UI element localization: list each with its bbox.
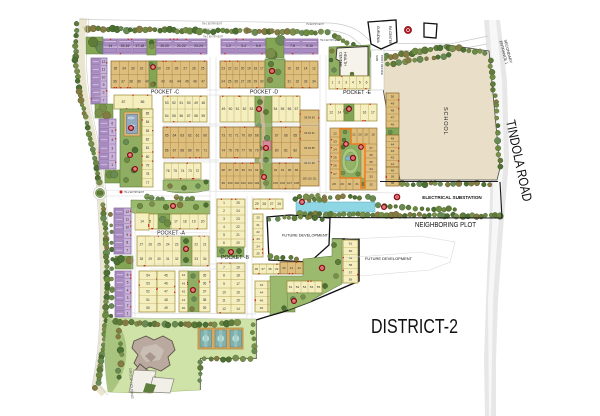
svg-text:10: 10	[125, 225, 129, 229]
svg-text:POCKET -D: POCKET -D	[250, 90, 278, 96]
svg-text:30: 30	[256, 216, 260, 220]
svg-text:6: 6	[223, 241, 225, 245]
svg-text:19: 19	[364, 133, 368, 137]
svg-text:50: 50	[229, 107, 233, 111]
svg-text:42: 42	[182, 290, 186, 294]
svg-text:3-4: 3-4	[241, 44, 246, 48]
svg-text:96: 96	[235, 168, 239, 172]
svg-text:52: 52	[172, 101, 176, 105]
svg-text:49: 49	[391, 102, 395, 106]
svg-text:7M-3 ENTRY/EXIT: 7M-3 ENTRY/EXIT	[320, 39, 341, 42]
svg-text:70: 70	[196, 149, 200, 153]
svg-text:36: 36	[255, 267, 259, 271]
svg-text:56: 56	[349, 278, 353, 282]
svg-text:38: 38	[268, 267, 272, 271]
svg-text:24: 24	[221, 80, 225, 84]
svg-text:24: 24	[236, 209, 240, 213]
svg-text:3: 3	[223, 217, 225, 221]
svg-text:15: 15	[296, 66, 300, 70]
svg-text:33: 33	[194, 257, 198, 261]
svg-text:21-22: 21-22	[177, 44, 186, 48]
svg-text:11: 11	[102, 68, 106, 72]
svg-text:81: 81	[284, 149, 288, 153]
svg-text:CENTER: CENTER	[338, 52, 342, 67]
svg-text:8: 8	[223, 274, 225, 278]
svg-text:34: 34	[256, 244, 260, 248]
svg-text:49: 49	[164, 306, 168, 310]
svg-text:16: 16	[236, 290, 240, 294]
svg-text:7M-2 ENTRY/EXIT: 7M-2 ENTRY/EXIT	[124, 191, 145, 194]
svg-text:78: 78	[146, 172, 150, 176]
svg-text:53: 53	[165, 101, 169, 105]
svg-text:45: 45	[260, 299, 264, 303]
svg-text:44: 44	[391, 143, 395, 147]
svg-text:44: 44	[177, 80, 181, 84]
svg-text:3: 3	[127, 296, 129, 300]
svg-text:98: 98	[222, 168, 226, 172]
svg-text:31: 31	[355, 182, 359, 186]
svg-text:75: 75	[228, 149, 232, 153]
svg-text:16: 16	[287, 66, 291, 70]
svg-text:20: 20	[358, 133, 362, 137]
svg-text:68: 68	[180, 149, 184, 153]
svg-text:50: 50	[391, 95, 395, 99]
svg-text:11: 11	[222, 299, 226, 303]
svg-text:33: 33	[131, 67, 135, 71]
svg-text:DISTRICT-2: DISTRICT-2	[371, 316, 458, 338]
svg-text:30: 30	[348, 182, 352, 186]
svg-text:6: 6	[366, 81, 368, 85]
svg-text:33: 33	[256, 237, 260, 241]
svg-text:87: 87	[122, 100, 126, 104]
svg-text:82: 82	[146, 138, 150, 142]
svg-text:POCKET -B: POCKET -B	[221, 255, 249, 261]
svg-text:37: 37	[369, 146, 373, 150]
svg-text:11: 11	[126, 218, 130, 222]
svg-text:24: 24	[166, 242, 170, 246]
svg-text:23: 23	[175, 242, 179, 246]
svg-text:35: 35	[114, 67, 118, 71]
svg-text:9: 9	[103, 83, 105, 87]
svg-text:31: 31	[166, 257, 170, 261]
svg-text:44: 44	[260, 291, 264, 295]
svg-text:22: 22	[236, 225, 240, 229]
svg-text:POST OFFICE: POST OFFICE	[380, 55, 384, 75]
svg-text:19: 19	[192, 220, 196, 224]
svg-text:2: 2	[127, 304, 129, 308]
svg-text:29: 29	[254, 80, 258, 84]
svg-text:77: 77	[242, 149, 246, 153]
svg-text:27: 27	[270, 202, 274, 206]
svg-text:14: 14	[108, 44, 112, 48]
svg-text:58: 58	[349, 263, 353, 267]
svg-text:49: 49	[222, 107, 226, 111]
svg-text:109 110 111: 109 110 111	[302, 176, 317, 180]
svg-text:1-2: 1-2	[226, 44, 231, 48]
svg-text:31: 31	[256, 223, 260, 227]
svg-text:89: 89	[295, 168, 299, 172]
svg-text:48: 48	[164, 298, 168, 302]
svg-text:42: 42	[391, 156, 395, 160]
svg-text:20: 20	[201, 220, 205, 224]
svg-text:101: 101	[234, 181, 239, 185]
svg-text:5-6: 5-6	[256, 44, 261, 48]
svg-text:43: 43	[169, 80, 173, 84]
svg-text:8: 8	[103, 91, 105, 95]
svg-text:30: 30	[260, 80, 264, 84]
svg-text:37: 37	[261, 267, 265, 271]
svg-text:80: 80	[146, 155, 150, 159]
svg-text:35: 35	[369, 160, 373, 164]
svg-text:75: 75	[173, 169, 177, 173]
svg-text:15: 15	[236, 299, 240, 303]
svg-text:63: 63	[180, 134, 184, 138]
svg-text:25: 25	[333, 156, 337, 160]
svg-text:57: 57	[295, 107, 299, 111]
svg-text:52: 52	[146, 290, 150, 294]
svg-text:39: 39	[275, 267, 279, 271]
svg-text:26: 26	[333, 164, 337, 168]
svg-text:86: 86	[141, 100, 145, 104]
svg-text:97: 97	[228, 168, 232, 172]
svg-text:SUB: SUB	[375, 55, 379, 61]
svg-text:56: 56	[288, 107, 292, 111]
svg-text:20: 20	[241, 66, 245, 70]
svg-text:26: 26	[277, 202, 281, 206]
svg-text:36: 36	[113, 80, 117, 84]
svg-text:18: 18	[254, 66, 258, 70]
svg-text:43: 43	[391, 149, 395, 153]
svg-text:30: 30	[157, 257, 161, 261]
svg-text:58: 58	[194, 114, 198, 118]
svg-text:40: 40	[282, 266, 286, 270]
svg-text:14: 14	[236, 307, 240, 311]
svg-text:25: 25	[228, 80, 232, 84]
svg-text:15-16: 15-16	[121, 44, 130, 48]
svg-text:69: 69	[248, 134, 252, 138]
svg-text:21: 21	[236, 233, 240, 237]
svg-text:33: 33	[369, 175, 373, 179]
svg-text:39: 39	[391, 175, 395, 179]
svg-text:41: 41	[182, 298, 186, 302]
svg-text:51: 51	[236, 107, 240, 111]
svg-text:12: 12	[125, 210, 129, 214]
svg-text:18: 18	[183, 220, 187, 224]
svg-text:9-10: 9-10	[306, 44, 313, 48]
svg-text:72: 72	[228, 134, 232, 138]
svg-text:RA CENTER: RA CENTER	[388, 26, 392, 45]
svg-text:84: 84	[146, 120, 150, 124]
svg-text:66: 66	[165, 149, 169, 153]
svg-text:14: 14	[140, 220, 144, 224]
svg-text:47: 47	[164, 290, 168, 294]
svg-text:29: 29	[255, 202, 259, 206]
svg-text:23-24: 23-24	[194, 44, 203, 48]
svg-text:20: 20	[236, 241, 240, 245]
svg-text:56: 56	[179, 114, 183, 118]
svg-text:48: 48	[201, 101, 205, 105]
svg-text:4: 4	[111, 138, 113, 142]
svg-text:106: 106	[280, 181, 285, 185]
svg-text:51: 51	[146, 298, 150, 302]
svg-text:28: 28	[247, 80, 251, 84]
svg-text:43: 43	[260, 283, 264, 287]
svg-text:29: 29	[148, 257, 152, 261]
svg-text:54: 54	[165, 114, 169, 118]
svg-text:71: 71	[203, 149, 207, 153]
svg-text:91: 91	[281, 168, 285, 172]
svg-text:32: 32	[256, 230, 260, 234]
svg-text:18: 18	[236, 274, 240, 278]
svg-text:POCKET -A: POCKET -A	[157, 231, 185, 237]
svg-text:22: 22	[194, 242, 198, 246]
svg-text:59: 59	[201, 114, 205, 118]
svg-text:32: 32	[369, 183, 373, 187]
svg-text:27: 27	[241, 80, 245, 84]
svg-text:107: 107	[287, 181, 292, 185]
svg-text:28: 28	[140, 257, 144, 261]
svg-text:52: 52	[243, 107, 247, 111]
svg-text:71: 71	[235, 134, 239, 138]
svg-text:57: 57	[349, 270, 353, 274]
svg-text:50: 50	[146, 306, 150, 310]
svg-text:40: 40	[145, 80, 149, 84]
svg-text:76: 76	[166, 169, 170, 173]
svg-text:25: 25	[201, 67, 205, 71]
svg-text:55: 55	[172, 114, 176, 118]
svg-text:78: 78	[248, 149, 252, 153]
svg-text:54: 54	[146, 273, 150, 277]
svg-text:40: 40	[182, 306, 186, 310]
svg-text:5: 5	[223, 233, 225, 237]
svg-text:77: 77	[146, 181, 150, 185]
svg-text:81: 81	[146, 146, 150, 150]
svg-text:30: 30	[157, 67, 161, 71]
svg-text:ELECTRICAL SUBSTATION: ELECTRICAL SUBSTATION	[422, 195, 482, 200]
svg-text:GURUDWA: GURUDWA	[376, 26, 380, 44]
svg-text:4: 4	[352, 81, 354, 85]
svg-text:23: 23	[236, 217, 240, 221]
svg-text:53: 53	[303, 285, 307, 289]
svg-text:25: 25	[236, 201, 240, 205]
svg-text:37: 37	[121, 80, 125, 84]
svg-text:47: 47	[391, 116, 395, 120]
svg-text:46: 46	[193, 80, 197, 84]
svg-text:25: 25	[157, 242, 161, 246]
svg-text:57: 57	[187, 114, 191, 118]
svg-text:9: 9	[223, 282, 225, 286]
svg-text:62: 62	[188, 134, 192, 138]
svg-text:32: 32	[296, 80, 300, 84]
svg-text:73: 73	[188, 169, 192, 173]
svg-text:59: 59	[349, 256, 353, 260]
svg-text:73: 73	[222, 134, 226, 138]
svg-text:46: 46	[260, 306, 264, 310]
svg-text:79: 79	[146, 164, 150, 168]
svg-text:38: 38	[129, 80, 133, 84]
svg-text:42: 42	[161, 80, 165, 84]
svg-text:2: 2	[111, 155, 113, 159]
svg-text:46: 46	[391, 123, 395, 127]
svg-text:64: 64	[173, 134, 177, 138]
svg-text:27: 27	[140, 242, 144, 246]
svg-text:60: 60	[349, 249, 353, 253]
svg-text:6: 6	[127, 273, 129, 277]
svg-text:12: 12	[312, 66, 316, 70]
svg-text:1: 1	[331, 81, 333, 85]
svg-text:34: 34	[203, 257, 207, 261]
svg-text:40: 40	[391, 168, 395, 172]
svg-text:4: 4	[223, 225, 225, 229]
svg-text:55: 55	[317, 285, 321, 289]
svg-text:NEIGHBORING PLOT: NEIGHBORING PLOT	[415, 220, 477, 229]
svg-text:7M-1 ENTRY/EXIT: 7M-1 ENTRY/EXIT	[202, 23, 223, 26]
svg-text:72: 72	[195, 169, 199, 173]
svg-text:70: 70	[242, 134, 246, 138]
svg-text:67: 67	[173, 149, 177, 153]
svg-text:52: 52	[296, 285, 300, 289]
svg-text:104: 104	[254, 181, 259, 185]
svg-text:74: 74	[222, 149, 226, 153]
svg-text:22: 22	[228, 66, 232, 70]
svg-text:44: 44	[182, 273, 186, 277]
svg-text:3: 3	[111, 146, 113, 150]
svg-text:41: 41	[391, 162, 395, 166]
svg-text:54: 54	[310, 285, 314, 289]
svg-text:105: 105	[273, 181, 278, 185]
svg-text:19: 19	[247, 66, 251, 70]
svg-text:65: 65	[294, 134, 298, 138]
svg-text:41: 41	[290, 266, 294, 270]
svg-text:6: 6	[111, 121, 113, 125]
svg-text:49: 49	[194, 101, 198, 105]
svg-text:POCKET -C: POCKET -C	[151, 90, 179, 96]
svg-text:34: 34	[369, 167, 373, 171]
svg-text:53: 53	[250, 107, 254, 111]
svg-text:67: 67	[275, 134, 279, 138]
svg-text:103: 103	[247, 181, 252, 185]
svg-text:83: 83	[146, 129, 150, 133]
svg-text:32: 32	[140, 67, 144, 71]
svg-text:35: 35	[203, 273, 207, 277]
svg-text:29: 29	[340, 182, 344, 186]
svg-text:24: 24	[333, 148, 337, 152]
svg-text:2: 2	[338, 81, 340, 85]
svg-text:34: 34	[312, 80, 316, 84]
svg-text:68: 68	[255, 134, 259, 138]
svg-text:38: 38	[203, 298, 207, 302]
svg-text:22: 22	[333, 132, 337, 136]
svg-text:10: 10	[102, 75, 106, 79]
svg-text:83 84 85: 83 84 85	[304, 146, 315, 150]
svg-text:48: 48	[391, 109, 395, 113]
svg-text:69: 69	[188, 149, 192, 153]
svg-text:53: 53	[146, 282, 150, 286]
svg-text:8: 8	[126, 241, 128, 245]
svg-text:5: 5	[111, 130, 113, 134]
svg-text:51: 51	[289, 285, 293, 289]
svg-text:35: 35	[256, 252, 260, 256]
svg-text:63 62 61: 63 62 61	[304, 131, 315, 135]
svg-text:108: 108	[294, 181, 299, 185]
svg-text:66: 66	[284, 134, 288, 138]
svg-text:79: 79	[255, 149, 259, 153]
svg-text:1: 1	[223, 201, 225, 205]
svg-text:7M-1 ENTRY/EXIT: 7M-1 ENTRY/EXIT	[203, 36, 224, 39]
svg-text:45: 45	[185, 80, 189, 84]
svg-text:14: 14	[338, 111, 342, 115]
svg-text:21: 21	[352, 133, 356, 137]
svg-text:32: 32	[175, 257, 179, 261]
svg-text:60: 60	[203, 134, 207, 138]
svg-text:23: 23	[333, 140, 337, 144]
svg-text:99: 99	[222, 181, 226, 185]
svg-text:17: 17	[236, 282, 240, 286]
svg-text:45: 45	[391, 136, 395, 140]
svg-text:54: 54	[274, 107, 278, 111]
svg-text:FUTURE DEVELOPMENT: FUTURE DEVELOPMENT	[365, 256, 413, 261]
svg-text:36: 36	[369, 153, 373, 157]
svg-text:61: 61	[349, 242, 353, 246]
svg-text:18: 18	[371, 133, 375, 137]
svg-text:28: 28	[262, 202, 266, 206]
svg-text:28: 28	[175, 67, 179, 71]
svg-text:26: 26	[148, 242, 152, 246]
svg-text:58 59 60: 58 59 60	[304, 116, 315, 120]
svg-text:93: 93	[255, 168, 259, 172]
svg-text:92: 92	[274, 168, 278, 172]
svg-text:26: 26	[192, 67, 196, 71]
svg-text:55: 55	[281, 107, 285, 111]
svg-text:76: 76	[235, 149, 239, 153]
svg-text:12: 12	[222, 307, 226, 311]
svg-text:4: 4	[127, 288, 129, 292]
svg-text:3: 3	[345, 81, 347, 85]
svg-text:FUTURE DEVELOPMENT: FUTURE DEVELOPMENT	[282, 233, 329, 238]
svg-text:7: 7	[126, 248, 128, 252]
svg-text:39: 39	[137, 80, 141, 84]
svg-text:28: 28	[332, 182, 336, 186]
svg-text:5: 5	[359, 81, 361, 85]
svg-text:12: 12	[102, 60, 106, 64]
svg-text:1: 1	[127, 311, 129, 315]
svg-text:47: 47	[201, 80, 205, 84]
svg-text:90: 90	[288, 168, 292, 172]
svg-text:43: 43	[182, 281, 186, 285]
svg-text:45: 45	[164, 273, 168, 277]
svg-text:94: 94	[248, 168, 252, 172]
svg-text:21: 21	[203, 242, 207, 246]
svg-text:12: 12	[329, 111, 333, 115]
svg-text:27: 27	[333, 172, 337, 176]
svg-text:29: 29	[166, 67, 170, 71]
svg-text:33: 33	[304, 80, 308, 84]
svg-text:42: 42	[297, 266, 301, 270]
svg-text:16: 16	[363, 111, 367, 115]
svg-text:17: 17	[174, 220, 178, 224]
svg-text:21: 21	[234, 66, 238, 70]
svg-text:5: 5	[127, 281, 129, 285]
svg-text:102: 102	[241, 181, 246, 185]
svg-text:26: 26	[234, 80, 238, 84]
svg-text:7: 7	[103, 98, 105, 102]
svg-text:SCHOOL: SCHOOL	[442, 107, 448, 135]
svg-text:100: 100	[227, 181, 232, 185]
svg-text:19-20: 19-20	[160, 44, 169, 48]
svg-text:2: 2	[223, 209, 225, 213]
svg-text:37: 37	[203, 290, 207, 294]
svg-text:14: 14	[304, 66, 308, 70]
